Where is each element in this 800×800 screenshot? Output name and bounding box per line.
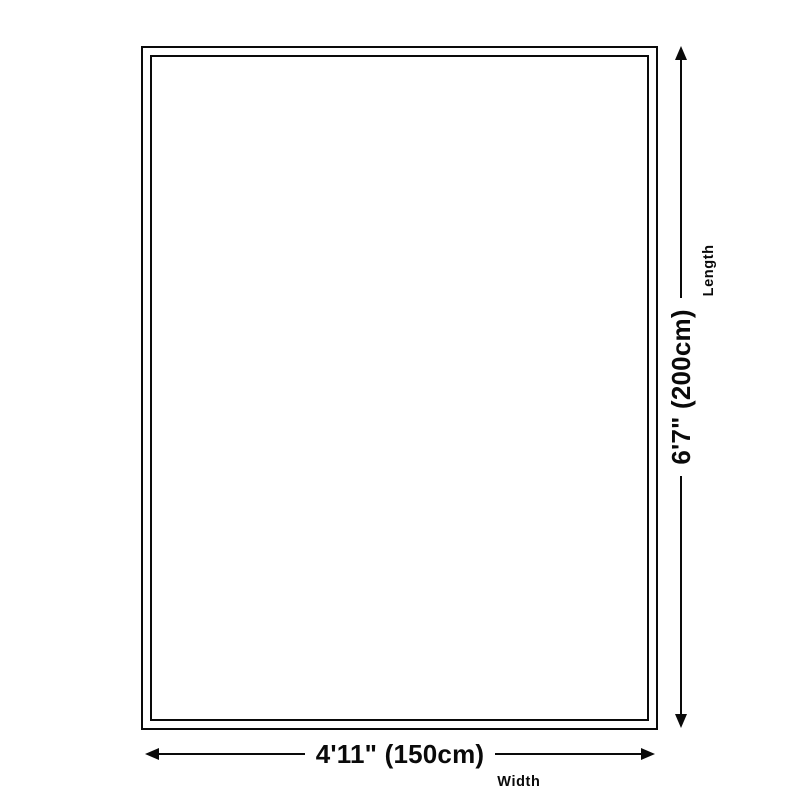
dimension-line — [680, 60, 683, 298]
arrow-up-icon — [675, 46, 687, 60]
length-value: 6'7" (200cm) — [668, 298, 694, 475]
length-dimension: 6'7" (200cm) Length — [659, 46, 703, 728]
length-label: Length — [702, 244, 717, 296]
width-value: 4'11" (150cm) — [305, 741, 496, 767]
arrow-left-icon — [145, 748, 159, 760]
width-dimension: 4'11" (150cm) Width — [145, 732, 655, 776]
rug-outline-outer — [141, 46, 658, 730]
arrow-down-icon — [675, 714, 687, 728]
dimension-line — [159, 753, 305, 756]
diagram-canvas: 6'7" (200cm) Length 4'11" (150cm) Width — [0, 0, 800, 800]
width-label: Width — [497, 775, 540, 790]
length-dimension-line-end: Length — [675, 46, 687, 298]
arrow-right-icon — [641, 748, 655, 760]
length-dimension-line-start — [675, 476, 687, 728]
width-dimension-line-start — [145, 748, 305, 760]
dimension-line — [495, 753, 641, 756]
rug-outline-inner — [150, 55, 649, 721]
width-dimension-line-end: Width — [495, 748, 655, 760]
dimension-line — [680, 476, 683, 714]
